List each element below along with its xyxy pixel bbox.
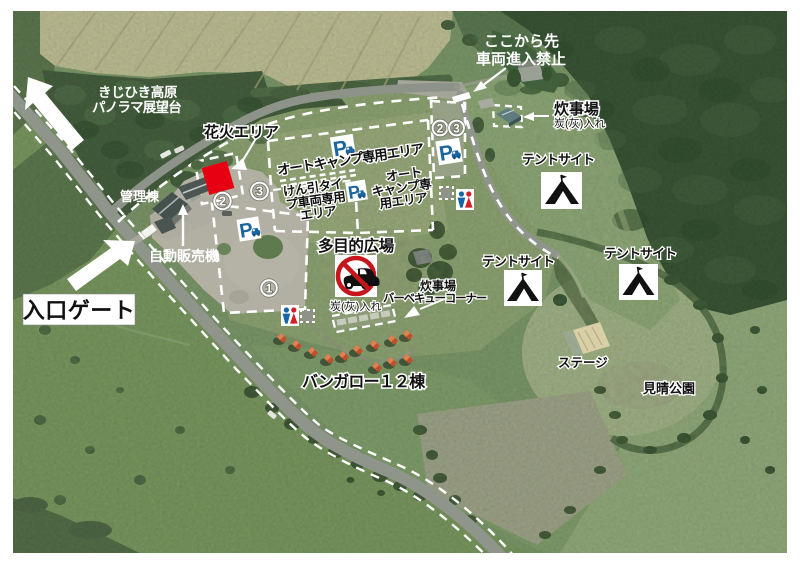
svg-text:3: 3 [453,121,460,135]
svg-text:バーベキューコーナー: バーベキューコーナー [383,292,487,305]
svg-text:テントサイト: テントサイト [522,152,594,167]
svg-text:花火エリア: 花火エリア [204,123,279,141]
svg-text:ここから先: ここから先 [484,32,559,50]
svg-text:入口ゲート: 入口ゲート [23,298,136,323]
svg-text:自動販売機: 自動販売機 [149,248,219,264]
svg-text:ステージ: ステージ [558,356,608,370]
svg-text:きじひき高原: きじひき高原 [98,84,178,100]
svg-text:多目的広場: 多目的広場 [318,236,395,255]
svg-text:バンガロー１２棟: バンガロー１２棟 [302,372,426,391]
svg-text:パノラマ展望台: パノラマ展望台 [92,99,181,115]
svg-text:炭(灰)入れ: 炭(灰)入れ [330,299,381,313]
svg-text:炭(灰)入れ: 炭(灰)入れ [554,116,605,130]
svg-text:2: 2 [437,121,444,135]
svg-text:2: 2 [219,194,226,209]
svg-text:テントサイト: テントサイト [604,246,676,261]
svg-text:見晴公園: 見晴公園 [642,381,695,396]
svg-text:管理棟: 管理棟 [120,189,160,204]
svg-text:3: 3 [256,184,263,199]
svg-text:炊事場: 炊事場 [554,100,599,118]
svg-text:テントサイト: テントサイト [482,254,554,269]
svg-text:車両進入禁止: 車両進入禁止 [476,50,566,68]
svg-text:炊事場: 炊事場 [420,278,456,293]
svg-text:1: 1 [266,281,273,295]
